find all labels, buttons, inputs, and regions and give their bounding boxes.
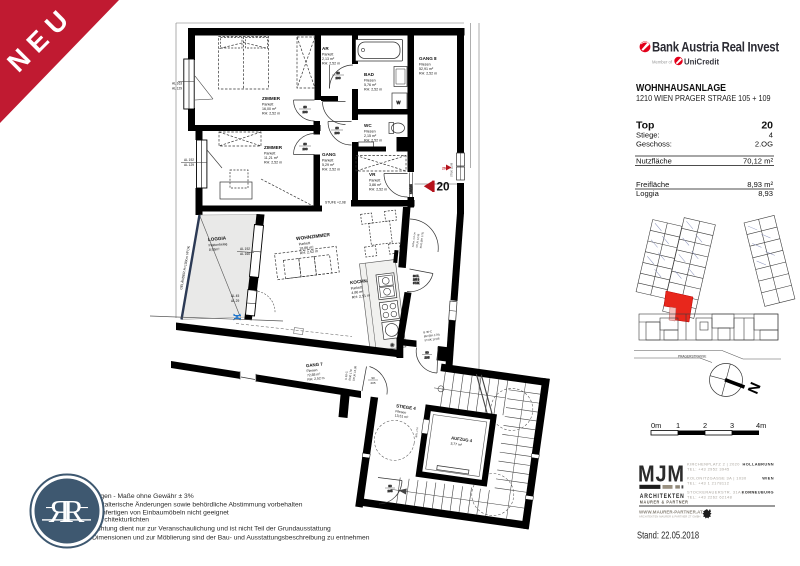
svg-text:Parkett: Parkett xyxy=(262,103,273,107)
svg-text:Member of: Member of xyxy=(652,60,673,65)
svg-text:RH: 2,52 m: RH: 2,52 m xyxy=(369,188,387,192)
svg-text:TEL: +43 2262 62148: TEL: +43 2262 62148 xyxy=(687,495,732,500)
svg-text:Fliesen: Fliesen xyxy=(364,79,376,83)
svg-text:WIEN: WIEN xyxy=(762,476,774,481)
svg-text:1210 WIEN PRAGER STRAßE 105 +: 1210 WIEN PRAGER STRAßE 105 + 109 xyxy=(636,94,771,103)
svg-text:HOLLABRUNN: HOLLABRUNN xyxy=(743,462,774,467)
svg-text:90: 90 xyxy=(425,351,429,355)
svg-text:80: 80 xyxy=(335,126,339,130)
svg-text:2: 2 xyxy=(703,421,707,430)
svg-text:ZIMMER: ZIMMER xyxy=(264,145,283,150)
svg-text:20: 20 xyxy=(437,180,451,194)
svg-text:AR: AR xyxy=(322,46,329,51)
svg-text:205: 205 xyxy=(387,489,392,493)
svg-text:Parkett: Parkett xyxy=(264,152,275,156)
svg-text:80: 80 xyxy=(336,71,340,75)
svg-text:70,12 m²: 70,12 m² xyxy=(743,157,773,166)
svg-text:VR: VR xyxy=(369,172,376,177)
svg-text:Parkett: Parkett xyxy=(369,179,380,183)
svg-text:0m: 0m xyxy=(651,421,661,430)
svg-text:2,15 m²: 2,15 m² xyxy=(364,134,377,138)
svg-text:Loggia: Loggia xyxy=(636,189,660,198)
svg-text:AL 192AL 160: AL 192AL 160 xyxy=(240,247,250,256)
svg-text:90: 90 xyxy=(371,376,375,380)
svg-text:11,21 m²: 11,21 m² xyxy=(264,156,279,160)
svg-text:3,86 m²: 3,86 m² xyxy=(369,183,382,187)
svg-text:Nutzfläche: Nutzfläche xyxy=(636,157,672,166)
svg-text:KORNEUBURG: KORNEUBURG xyxy=(742,490,774,495)
svg-text:4: 4 xyxy=(769,131,773,140)
svg-text:200: 200 xyxy=(335,76,340,80)
svg-text:STUK 12,08: STUK 12,08 xyxy=(450,162,454,177)
svg-text:80: 80 xyxy=(303,142,307,146)
svg-text:ZIMMER: ZIMMER xyxy=(262,96,281,101)
svg-text:RH: 2,52 m: RH: 2,52 m xyxy=(264,161,282,165)
svg-text:20: 20 xyxy=(442,167,446,171)
svg-text:R: R xyxy=(63,493,85,529)
svg-text:Parkett: Parkett xyxy=(322,159,333,163)
svg-text:BAD: BAD xyxy=(364,72,375,77)
svg-text:GANG: GANG xyxy=(322,152,336,157)
svg-text:Stand: 22.05.2018: Stand: 22.05.2018 xyxy=(637,529,699,540)
svg-text:GANG 8: GANG 8 xyxy=(419,56,437,61)
svg-text:205: 205 xyxy=(370,381,375,385)
svg-text:Fliesen: Fliesen xyxy=(364,130,376,134)
svg-text:TEL: +43 2952 3945: TEL: +43 2952 3945 xyxy=(687,467,730,472)
svg-text:100/205: 100/205 xyxy=(409,184,413,194)
svg-text:PRAGERSTRASSE: PRAGERSTRASSE xyxy=(678,355,706,359)
svg-text:TEL: +43 1 2178112: TEL: +43 1 2178112 xyxy=(687,481,729,486)
svg-text:WC: WC xyxy=(364,123,372,128)
svg-text:AL 163AL 129: AL 163AL 129 xyxy=(172,82,182,91)
svg-text:WWW.MAURER-PARTNER.AT: WWW.MAURER-PARTNER.AT xyxy=(639,510,703,515)
svg-text:200: 200 xyxy=(334,131,339,135)
svg-text:Stiege:: Stiege: xyxy=(636,131,660,140)
svg-text:5,76 m²: 5,76 m² xyxy=(364,83,377,87)
svg-text:8,93 m²: 8,93 m² xyxy=(747,180,773,189)
svg-text:52,91 m²: 52,91 m² xyxy=(419,67,434,71)
svg-text:STUFE +2,08: STUFE +2,08 xyxy=(325,201,346,205)
svg-text:RH: 2,52 m: RH: 2,52 m xyxy=(364,88,382,92)
svg-text:MJM: MJM xyxy=(638,460,685,487)
svg-text:Freifläche: Freifläche xyxy=(636,180,669,189)
svg-text:RH: 2,52 m: RH: 2,52 m xyxy=(419,72,437,76)
svg-text:16,00 m²: 16,00 m² xyxy=(262,107,277,111)
svg-text:RH: 2,52 m: RH: 2,52 m xyxy=(322,168,340,172)
svg-text:WOHNHAUSANLAGE: WOHNHAUSANLAGE xyxy=(636,83,726,94)
svg-text:RH: 2,52 m: RH: 2,52 m xyxy=(322,62,340,66)
svg-text:Fliesen: Fliesen xyxy=(419,63,431,67)
svg-text:4m: 4m xyxy=(756,421,766,430)
svg-text:Bank Austria Real Invest: Bank Austria Real Invest xyxy=(652,40,779,55)
svg-text:8,93: 8,93 xyxy=(758,189,773,198)
svg-text:205: 205 xyxy=(424,356,429,360)
svg-text:Parkett: Parkett xyxy=(322,53,333,57)
svg-text:MAURER & PARTNER: MAURER & PARTNER xyxy=(640,499,689,504)
svg-text:RH: 2,52 m: RH: 2,52 m xyxy=(262,112,280,116)
svg-text:2.OG: 2.OG xyxy=(755,140,773,149)
svg-text:UniCredit: UniCredit xyxy=(684,58,719,67)
svg-text:3: 3 xyxy=(730,421,734,430)
svg-text:1: 1 xyxy=(676,421,680,430)
svg-text:W: W xyxy=(397,100,401,105)
svg-text:5,29 m²: 5,29 m² xyxy=(322,163,335,167)
svg-text:90: 90 xyxy=(388,484,392,488)
svg-text:2,13 m²: 2,13 m² xyxy=(322,57,335,61)
svg-text:ARCHITEKTEN MAURER & PARTNER Z: ARCHITEKTEN MAURER & PARTNER ZT GMBH xyxy=(639,515,701,519)
svg-text:80: 80 xyxy=(303,105,307,109)
svg-text:200: 200 xyxy=(302,110,307,114)
svg-text:Geschoss:: Geschoss: xyxy=(636,140,672,149)
svg-text:STUK: STUK xyxy=(413,282,420,285)
svg-text:200: 200 xyxy=(302,147,307,151)
svg-text:AL 45AL 29: AL 45AL 29 xyxy=(231,294,239,303)
